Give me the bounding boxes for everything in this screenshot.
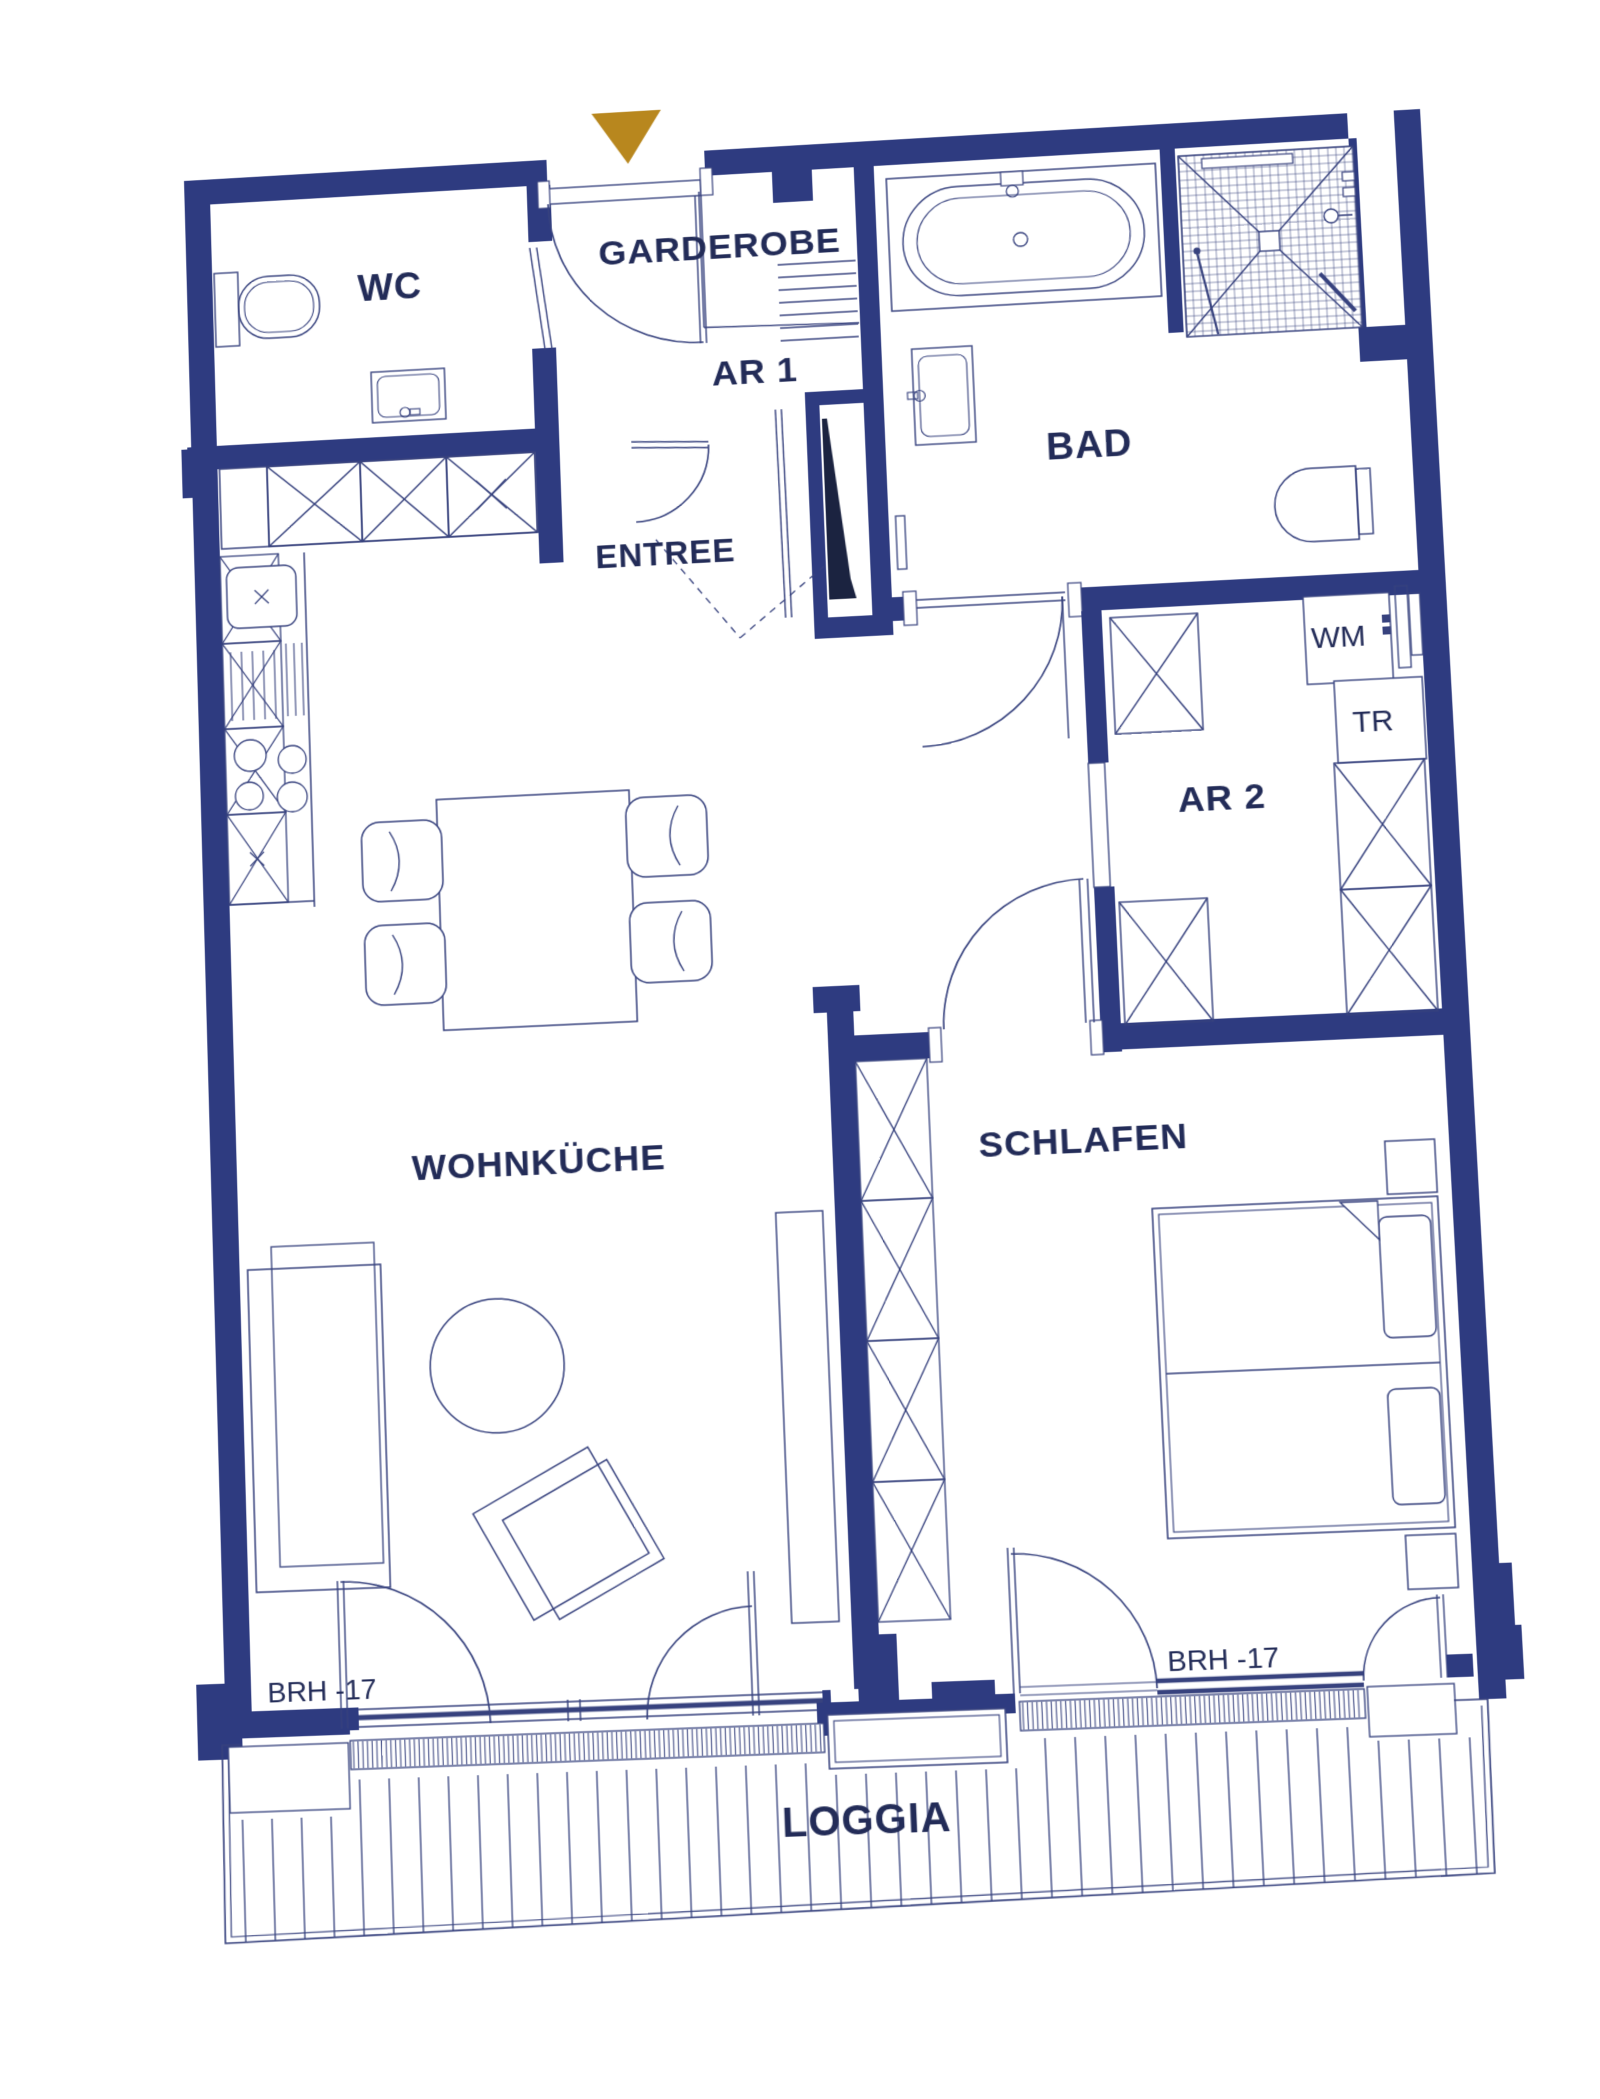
- svg-text:WC: WC: [357, 264, 423, 309]
- svg-text:AR 2: AR 2: [1177, 776, 1267, 820]
- svg-text:WM: WM: [1310, 620, 1366, 656]
- svg-text:ENTREE: ENTREE: [595, 531, 736, 575]
- svg-text:BRH -17: BRH -17: [267, 1673, 377, 1709]
- svg-text:BAD: BAD: [1045, 421, 1133, 468]
- svg-text:LOGGIA: LOGGIA: [781, 1794, 952, 1846]
- svg-text:SCHLAFEN: SCHLAFEN: [978, 1116, 1189, 1165]
- svg-text:TR: TR: [1352, 704, 1395, 739]
- svg-text:AR 1: AR 1: [711, 350, 799, 393]
- svg-text:BRH -17: BRH -17: [1167, 1641, 1280, 1678]
- svg-text:WOHNKÜCHE: WOHNKÜCHE: [411, 1137, 666, 1189]
- svg-text:GARDEROBE: GARDEROBE: [598, 221, 842, 273]
